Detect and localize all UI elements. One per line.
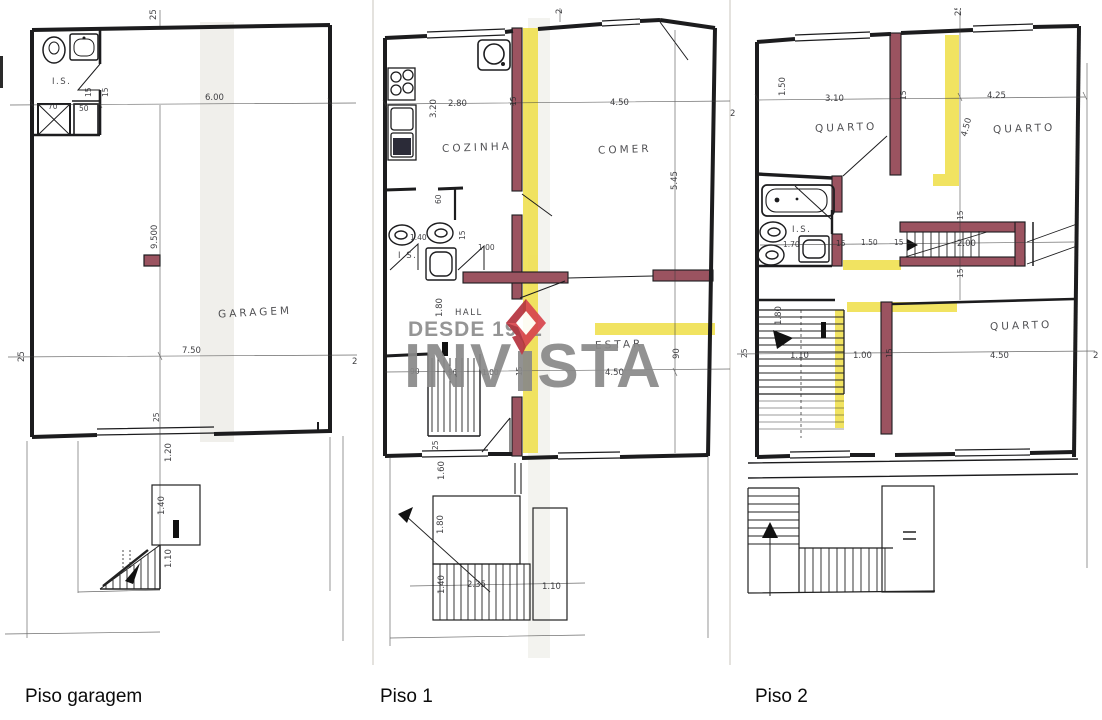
dim-label: 4.50 xyxy=(960,117,975,138)
scan-band xyxy=(200,22,234,442)
dim-label: 15 xyxy=(956,210,965,220)
dim-label: 50 xyxy=(79,104,89,113)
garagem-pillar xyxy=(144,255,160,266)
dim-label: 90 xyxy=(672,348,682,359)
garagem-toilet-icon xyxy=(43,37,65,63)
dim-label: 4.50 xyxy=(990,351,1009,361)
dim-label: 15 xyxy=(899,90,908,100)
dim-label: 15 xyxy=(509,96,518,106)
dim-label: 3.20 xyxy=(429,99,439,118)
dim-label: 2 xyxy=(352,357,357,367)
garagem-sink-icon xyxy=(70,34,98,60)
dim-label: 1.80 xyxy=(435,298,445,317)
piso2-left-stairs xyxy=(757,310,844,438)
dim-label: 1.10 xyxy=(164,549,174,568)
dim-label: 15 xyxy=(84,87,93,97)
caption-piso-1: Piso 1 xyxy=(380,686,433,708)
dim-label: 25 xyxy=(17,351,27,362)
dim-label: 2.35 xyxy=(467,580,486,590)
dim-label: 1.20 xyxy=(164,443,174,462)
room-label: I.S. xyxy=(52,77,71,87)
dim-label: 2 xyxy=(1093,351,1098,361)
dim-label: 4.25 xyxy=(987,91,1006,101)
dim-label: 15 xyxy=(956,268,965,278)
piso2-toilet-icon xyxy=(760,222,786,242)
dim-label: 25 xyxy=(431,440,440,450)
watermark-brand: INV STA xyxy=(404,343,663,391)
piso2-dimension-lines xyxy=(737,10,1095,568)
floor-plan-garagem: 25 6.00 70 50 15 15 I.S. 9.500 GARAGEM 7… xyxy=(0,8,370,673)
room-label: I.S. xyxy=(792,225,811,235)
dim-label: 1.50 xyxy=(861,238,878,247)
piso2-bidet-icon xyxy=(758,245,784,265)
dim-label: 15 xyxy=(836,239,846,248)
dim-label: 5.45 xyxy=(670,171,680,190)
dim-label: 1.40 xyxy=(437,575,447,594)
dim-label: 1.40 xyxy=(157,496,167,515)
piso1-stove-icon xyxy=(388,68,415,100)
dim-label: 1.60 xyxy=(437,461,447,480)
garagem-dimension-lines xyxy=(5,10,357,641)
dim-label: 7.50 xyxy=(182,346,201,356)
floor-plans-page: { "captions": { "garagem": "Piso garagem… xyxy=(0,0,1102,720)
dim-label: 1.80 xyxy=(774,306,784,325)
dim-label: 1.50 xyxy=(778,77,788,96)
garagem-walls xyxy=(32,25,330,437)
dim-label: 1.10 xyxy=(542,582,561,592)
room-label: QUARTO xyxy=(993,122,1056,136)
piso1-cooktop-icon xyxy=(478,40,510,70)
room-label: GARAGEM xyxy=(218,305,293,321)
dim-label: 2.80 xyxy=(448,99,467,109)
dim-label: 25 xyxy=(149,9,159,20)
piso2-walls xyxy=(748,24,1079,478)
dim-label: 9.500 xyxy=(150,225,160,249)
room-label: QUARTO xyxy=(815,121,878,135)
floor-plan-piso2: 25 1.50 3.10 15 4.25 QUARTO QUARTO 4.50 … xyxy=(735,8,1102,673)
piso2-exterior-stairs xyxy=(748,486,935,596)
dim-label: 1.00 xyxy=(853,351,872,361)
scan-edge-mark xyxy=(0,56,3,88)
dim-label: 15 xyxy=(894,238,904,247)
dim-label: 1.10 xyxy=(790,351,809,361)
piso1-labels: 25 3.20 2.80 15 4.50 5.45 2 COZINHA COME… xyxy=(398,8,735,594)
room-label: COMER xyxy=(598,143,652,157)
watermark-i-stem xyxy=(518,351,532,391)
room-label: I.S. xyxy=(398,251,417,261)
room-label: COZINHA xyxy=(442,141,512,155)
dim-label: 25 xyxy=(954,8,964,16)
dim-label: 15 xyxy=(458,230,467,240)
dim-label: 1.00 xyxy=(478,243,495,252)
dim-label: 1.70 xyxy=(783,240,800,249)
dim-label: 6.00 xyxy=(205,93,224,103)
piso1-kitchen-sink-icon xyxy=(388,105,416,160)
room-label: QUARTO xyxy=(990,319,1053,333)
dim-label: 4.50 xyxy=(610,98,629,108)
dim-label: 15 xyxy=(885,348,894,358)
dim-label: 25 xyxy=(152,412,161,422)
garagem-exterior-stairs xyxy=(100,485,200,589)
room-label: HALL xyxy=(455,308,483,318)
invista-diamond-logo xyxy=(504,297,548,357)
dim-label: 60 xyxy=(434,194,443,204)
caption-piso-garagem: Piso garagem xyxy=(25,686,142,708)
watermark: DESDE 1992 INV STA xyxy=(404,318,663,391)
dim-label: 25 xyxy=(740,348,749,358)
dim-label: 2.00 xyxy=(957,239,976,249)
caption-piso-2: Piso 2 xyxy=(755,686,808,708)
dim-label: 1.40 xyxy=(410,233,427,242)
garagem-labels: 25 6.00 70 50 15 15 I.S. 9.500 GARAGEM 7… xyxy=(17,9,357,568)
dim-label: 3.10 xyxy=(825,94,844,104)
piso2-basin-icon xyxy=(799,236,829,262)
dim-label: 70 xyxy=(48,102,58,111)
watermark-brand-left: INV xyxy=(404,343,513,391)
watermark-brand-right: STA xyxy=(537,343,662,391)
dim-label: 15 xyxy=(101,87,110,97)
dim-label: 1.80 xyxy=(436,515,446,534)
piso1-bidet-icon xyxy=(427,223,453,243)
piso1-basin-icon xyxy=(426,248,456,280)
dim-label: 25 xyxy=(555,8,565,14)
